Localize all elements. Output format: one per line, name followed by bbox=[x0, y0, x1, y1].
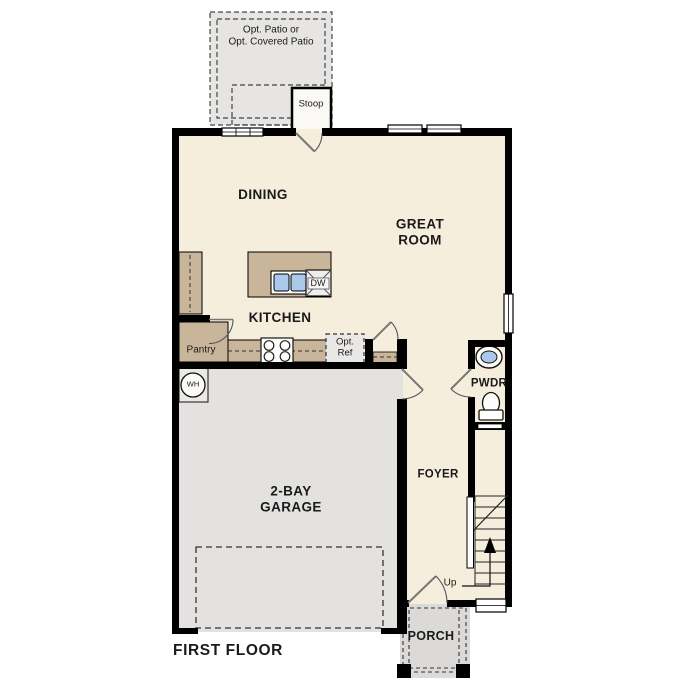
stair-handrail bbox=[467, 497, 474, 568]
great-room-label: GREAT ROOM bbox=[396, 216, 444, 247]
kitchen-label: KITCHEN bbox=[249, 310, 312, 326]
opt-ref-label: Opt. Ref bbox=[336, 337, 354, 360]
porch-label: PORCH bbox=[408, 629, 455, 643]
foyer-label: FOYER bbox=[417, 468, 458, 481]
cooktop-icon bbox=[261, 338, 293, 364]
floor-plan: Opt. Patio or Opt. Covered Patio Stoop D… bbox=[0, 0, 687, 687]
kitchen-sink-icon bbox=[271, 271, 308, 294]
floor-title: FIRST FLOOR bbox=[173, 642, 283, 660]
pwdr-wall-inset bbox=[478, 424, 502, 429]
pantry-area bbox=[179, 322, 228, 362]
powder-room-label: PWDR bbox=[471, 377, 507, 390]
powder-sink-icon bbox=[476, 346, 502, 368]
pantry-label: Pantry bbox=[187, 344, 216, 356]
dining-room-label: DINING bbox=[238, 187, 288, 203]
dishwasher-label: DW bbox=[311, 278, 326, 288]
patio-label: Opt. Patio or Opt. Covered Patio bbox=[228, 25, 313, 48]
up-label: Up bbox=[444, 577, 457, 589]
stoop-label: Stoop bbox=[299, 100, 324, 111]
water-heater-label: WH bbox=[187, 381, 200, 390]
garage-label: 2-BAY GARAGE bbox=[260, 483, 322, 514]
